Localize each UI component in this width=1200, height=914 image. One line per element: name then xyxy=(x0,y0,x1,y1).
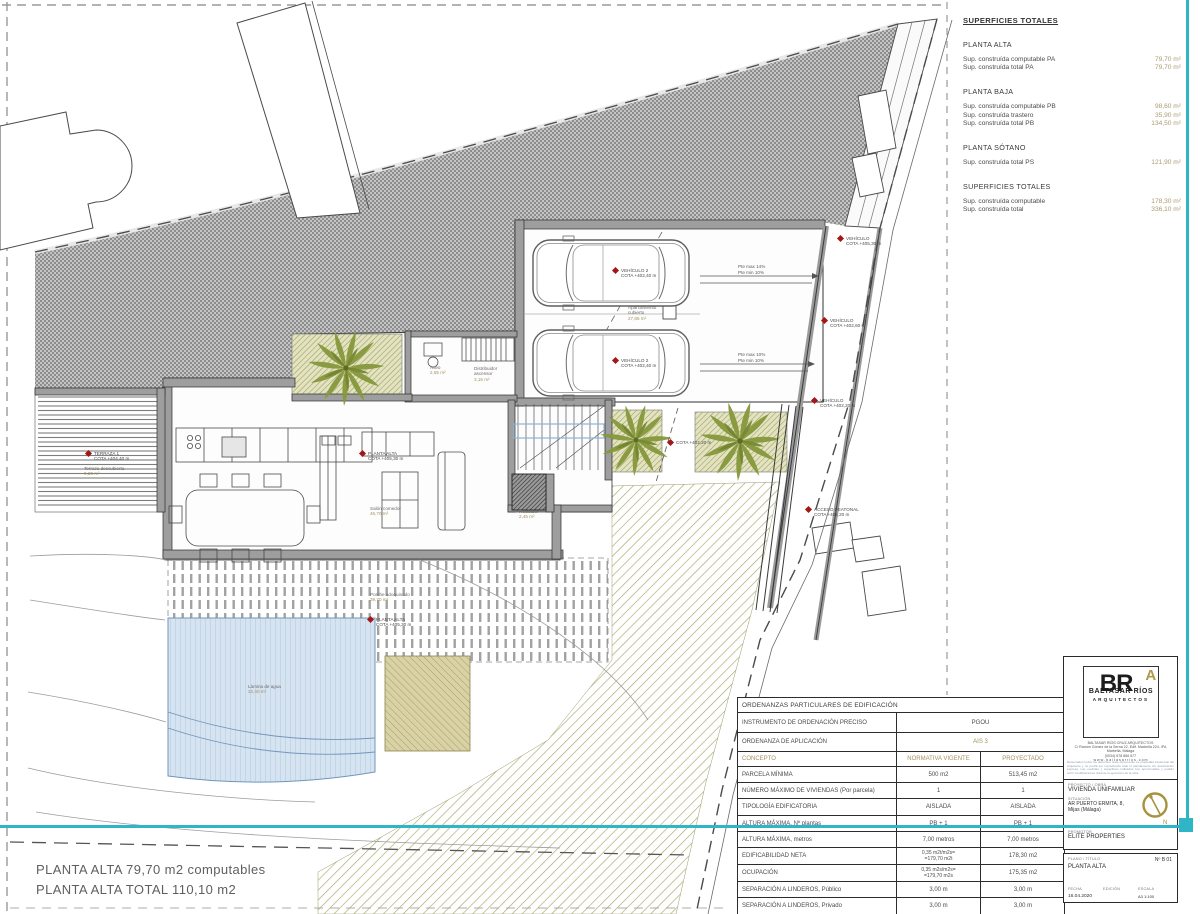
superficies-row-label: Sup. construída computable PA xyxy=(963,56,1135,64)
ordenanzas-concepto: TIPOLOGÍA EDIFICATORIA xyxy=(738,799,897,816)
ordenanzas-vigente: PB + 1 xyxy=(897,816,981,832)
superficies-row-label: Sup. construída total PA xyxy=(963,64,1135,72)
superficies-row: Sup. construída trastero35,90 m² xyxy=(963,112,1181,120)
fecha-value: 16.04.2020 xyxy=(1068,894,1103,899)
plan-sheet: VEHÍCULO 2 COTA +402,40 mVEHÍCULO 2 COTA… xyxy=(0,0,1200,914)
ordenanzas-vigente: AISLADA xyxy=(897,799,981,816)
ordenanzas-data-row: TIPOLOGÍA EDIFICATORIAAISLADAAISLADA xyxy=(738,799,1064,816)
superficies-row-value: 336,10 m² xyxy=(1135,206,1181,214)
ordenanzas-proyectado: 175,35 m2 xyxy=(981,865,1065,882)
ordenanzas-proyectado: 7,00 metros xyxy=(981,832,1065,848)
plano-title: PLANTA ALTA xyxy=(1068,864,1173,870)
teal-horizontal-reference-line xyxy=(0,825,1193,828)
plano-box: PLANO / TÍTULO Nº B 01 PLANTA ALTA FECHA… xyxy=(1063,853,1178,903)
superficies-section: SUPERFICIES TOTALESSup. construída compu… xyxy=(963,182,1181,214)
plano-number: Nº B 01 xyxy=(1155,857,1172,863)
ordenanzas-proyectado: 1 xyxy=(981,783,1065,799)
ordenanzas-proyectado: 3,00 m xyxy=(981,898,1065,914)
superficies-row-label: Sup. construída total PB xyxy=(963,120,1135,128)
firm-subtitle: ARQUITECTOS xyxy=(1084,697,1158,702)
superficies-row-value: 79,70 m² xyxy=(1135,56,1181,64)
superficies-row-label: Sup. construída total xyxy=(963,206,1135,214)
ordenanzas-data-row: SEPARACIÓN A LINDEROS, Público3,00 m3,00… xyxy=(738,882,1064,898)
promotor-box: PROMOTOR ELITE PROPERTIES xyxy=(1063,827,1178,850)
ordenanzas-concepto: OCUPACIÓN xyxy=(738,865,897,882)
north-arrow-icon: N xyxy=(1139,790,1173,828)
teal-corner-marker xyxy=(1179,818,1193,832)
superficies-row-value: 178,30 m² xyxy=(1135,198,1181,206)
superficies-row-label: Sup. construída trastero xyxy=(963,112,1135,120)
superficies-row: Sup. construída computable PA79,70 m² xyxy=(963,56,1181,64)
ordenanzas-concepto: ALTURA MÁXIMA, metros xyxy=(738,832,897,848)
superficies-row-value: 98,60 m² xyxy=(1135,103,1181,111)
ordenanzas-data-row: EDIFICABILIDAD NETA0,35 m2t/m2s= =179,70… xyxy=(738,848,1064,865)
ordenanzas-proyectado: 178,30 m2 xyxy=(981,848,1065,865)
superficies-section: PLANTA ALTASup. construída computable PA… xyxy=(963,40,1181,72)
superficies-heading: PLANTA SÓTANO xyxy=(963,143,1181,152)
superficies-section: PLANTA SÓTANOSup. construída total PS121… xyxy=(963,143,1181,167)
superficies-heading: SUPERFICIES TOTALES xyxy=(963,182,1181,191)
ordenanzas-vigente: 7,00 metros xyxy=(897,832,981,848)
logo: BRA BALTASAR RÍOS ARQUITECTOS xyxy=(1083,666,1159,738)
ordenanzas-header-cell: CONCEPTO xyxy=(738,752,897,767)
ordenanzas-label: INSTRUMENTO DE ORDENACIÓN PRECISO xyxy=(738,713,897,733)
ordenanzas-proyectado: PB + 1 xyxy=(981,816,1065,832)
ordenanzas-concepto: PARCELA MÍNIMA xyxy=(738,767,897,783)
superficies-title: SUPERFICIES TOTALES xyxy=(963,16,1181,25)
ordenanzas-vigente: 500 m2 xyxy=(897,767,981,783)
ordenanzas-data-row: PARCELA MÍNIMA500 m2513,45 m2 xyxy=(738,767,1064,783)
superficies-row-value: 134,50 m² xyxy=(1135,120,1181,128)
ordenanzas-vigente: 0,35 m2t/m2s= =179,70 m2t xyxy=(897,848,981,865)
title-block: BRA BALTASAR RÍOS ARQUITECTOS BALTASAR R… xyxy=(1063,656,1178,903)
firm-name: BALTASAR RÍOS xyxy=(1084,688,1158,695)
footer-note: PLANTA ALTA 79,70 m2 computables PLANTA … xyxy=(36,860,266,900)
superficies-row: Sup. construída computable PB98,60 m² xyxy=(963,103,1181,111)
superficies-row: Sup. construída total336,10 m² xyxy=(963,206,1181,214)
ordenanzas-data-row: ALTURA MÁXIMA, Nº plantasPB + 1PB + 1 xyxy=(738,816,1064,832)
superficies-row-label: Sup. construída total PS xyxy=(963,159,1135,167)
ordenanzas-concepto: SEPARACIÓN A LINDEROS, Público xyxy=(738,882,897,898)
ordenanzas-concepto: NÚMERO MÁXIMO DE VIVIENDAS (Por parcela) xyxy=(738,783,897,799)
ordenanzas-data-row: SEPARACIÓN A LINDEROS, Privado3,00 m3,00… xyxy=(738,898,1064,914)
firm-address: BALTASAR RÍOS CRUZ ARQUITECTOSC/ Ramón G… xyxy=(1066,741,1175,762)
superficies-section: PLANTA BAJASup. construída computable PB… xyxy=(963,87,1181,128)
promotor-value: ELITE PROPERTIES xyxy=(1068,834,1173,840)
ordenanzas-title: ORDENANZAS PARTICULARES DE EDIFICACIÓN xyxy=(738,698,1064,713)
ordenanzas-proyectado: 3,00 m xyxy=(981,882,1065,898)
ordenanzas-data-row: NÚMERO MÁXIMO DE VIVIENDAS (Por parcela)… xyxy=(738,783,1064,799)
footer-line-1: PLANTA ALTA 79,70 m2 computables xyxy=(36,860,266,880)
ordenanzas-vigente: 3,00 m xyxy=(897,882,981,898)
ordenanzas-proyectado: 513,45 m2 xyxy=(981,767,1065,783)
ordenanzas-data-row: OCUPACIÓN0,35 m2s/m2s= =179,70 m2s175,35… xyxy=(738,865,1064,882)
superficies-row: Sup. construída total PA79,70 m² xyxy=(963,64,1181,72)
ordenanzas-concepto: EDIFICABILIDAD NETA xyxy=(738,848,897,865)
ordenanzas-concepto: SEPARACIÓN A LINDEROS, Privado xyxy=(738,898,897,914)
legal-disclaimer: Reservados todos los derechos. Este docu… xyxy=(1067,761,1174,775)
escala-label: ESCALA xyxy=(1138,887,1173,891)
ordenanzas-header-row: CONCEPTONORMATIVA VIGENTEPROYECTADO xyxy=(738,752,1064,767)
ordenanzas-data-row: ALTURA MÁXIMA, metros7,00 metros7,00 met… xyxy=(738,832,1064,848)
ordenanzas-vigente: 1 xyxy=(897,783,981,799)
ordenanzas-header-cell: NORMATIVA VIGENTE xyxy=(897,752,981,767)
superficies-row-value: 79,70 m² xyxy=(1135,64,1181,72)
project-box: PROYECTO / OBRA VIVIENDA UNIFAMILIAR SIT… xyxy=(1063,780,1178,827)
ordenanzas-header-cell: PROYECTADO xyxy=(981,752,1065,767)
superficies-panel: SUPERFICIES TOTALES PLANTA ALTASup. cons… xyxy=(963,10,1181,215)
ordenanzas-vigente: 0,35 m2s/m2s= =179,70 m2s xyxy=(897,865,981,882)
superficies-row: Sup. construída total PB134,50 m² xyxy=(963,120,1181,128)
footer-line-2: PLANTA ALTA TOTAL 110,10 m2 xyxy=(36,880,266,900)
teal-vertical-reference-line xyxy=(1186,0,1189,828)
superficies-row-value: 121,90 m² xyxy=(1135,159,1181,167)
architect-logo-box: BRA BALTASAR RÍOS ARQUITECTOS BALTASAR R… xyxy=(1063,656,1178,780)
ordenanzas-value: AIS 3 xyxy=(897,733,1064,752)
superficies-row-label: Sup. construída computable PB xyxy=(963,103,1135,111)
edicion-label: EDICIÓN xyxy=(1103,887,1138,891)
fecha-label: FECHA xyxy=(1068,887,1103,891)
superficies-row-label: Sup. construída computable xyxy=(963,198,1135,206)
ordenanzas-table: ORDENANZAS PARTICULARES DE EDIFICACIÓN I… xyxy=(737,697,1065,914)
superficies-heading: PLANTA BAJA xyxy=(963,87,1181,96)
superficies-heading: PLANTA ALTA xyxy=(963,40,1181,49)
superficies-row: Sup. construída computable178,30 m² xyxy=(963,198,1181,206)
ordenanzas-concepto: ALTURA MÁXIMA, Nº plantas xyxy=(738,816,897,832)
ordenanzas-vigente: 3,00 m xyxy=(897,898,981,914)
ordenanzas-label: ORDENANZA DE APLICACIÓN xyxy=(738,733,897,752)
logo-a-letter: A xyxy=(1145,667,1155,684)
ordenanzas-value: PGOU xyxy=(897,713,1064,733)
ordenanzas-proyectado: AISLADA xyxy=(981,799,1065,816)
ordenanzas-pre-row: ORDENANZA DE APLICACIÓNAIS 3 xyxy=(738,733,1064,752)
superficies-row-value: 35,90 m² xyxy=(1135,112,1181,120)
superficies-row: Sup. construída total PS121,90 m² xyxy=(963,159,1181,167)
escala-value: A3 1:100 xyxy=(1138,894,1173,899)
ordenanzas-pre-row: INSTRUMENTO DE ORDENACIÓN PRECISOPGOU xyxy=(738,713,1064,733)
